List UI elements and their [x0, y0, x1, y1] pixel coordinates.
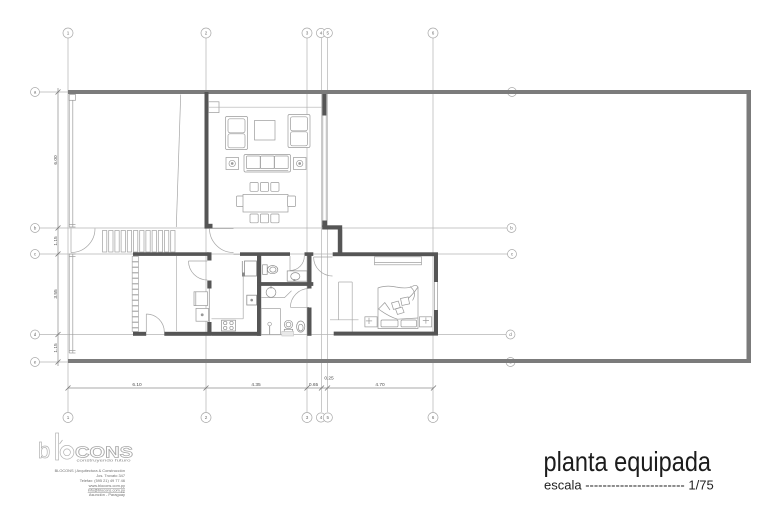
svg-text:2: 2	[205, 415, 208, 420]
svg-text:3: 3	[306, 31, 309, 36]
svg-text:4: 4	[320, 415, 323, 420]
svg-text:Asunción - Paraguay: Asunción - Paraguay	[89, 492, 125, 497]
svg-text:d: d	[34, 332, 37, 337]
svg-text:6: 6	[432, 415, 435, 420]
svg-text:1.15: 1.15	[53, 343, 59, 353]
svg-text:construyendo futuro: construyendo futuro	[77, 457, 131, 462]
svg-text:escala -----------------------: escala ----------------------- 1/75	[544, 478, 714, 493]
svg-text:1: 1	[67, 415, 70, 420]
svg-text:b: b	[510, 226, 513, 231]
svg-text:6: 6	[432, 31, 435, 36]
svg-text:4.70: 4.70	[375, 382, 385, 388]
svg-text:d: d	[509, 332, 512, 337]
svg-text:b: b	[34, 226, 37, 231]
svg-text:1.15: 1.15	[53, 236, 59, 246]
svg-text:5: 5	[327, 415, 330, 420]
svg-text:a: a	[34, 90, 37, 95]
svg-text:3: 3	[306, 415, 309, 420]
svg-text:5: 5	[327, 31, 330, 36]
svg-text:6.10: 6.10	[132, 382, 142, 388]
svg-text:6.00: 6.00	[53, 155, 59, 165]
svg-text:4: 4	[320, 31, 323, 36]
svg-text:b: b	[38, 438, 50, 463]
svg-text:e: e	[34, 360, 37, 365]
svg-text:0.65: 0.65	[309, 382, 319, 388]
svg-text:2: 2	[205, 31, 208, 36]
svg-text:1: 1	[67, 31, 70, 36]
svg-text:4.35: 4.35	[251, 382, 261, 388]
svg-text:0.25: 0.25	[324, 376, 334, 382]
svg-text:planta equipada: planta equipada	[544, 446, 712, 477]
svg-text:3.55: 3.55	[53, 289, 59, 299]
